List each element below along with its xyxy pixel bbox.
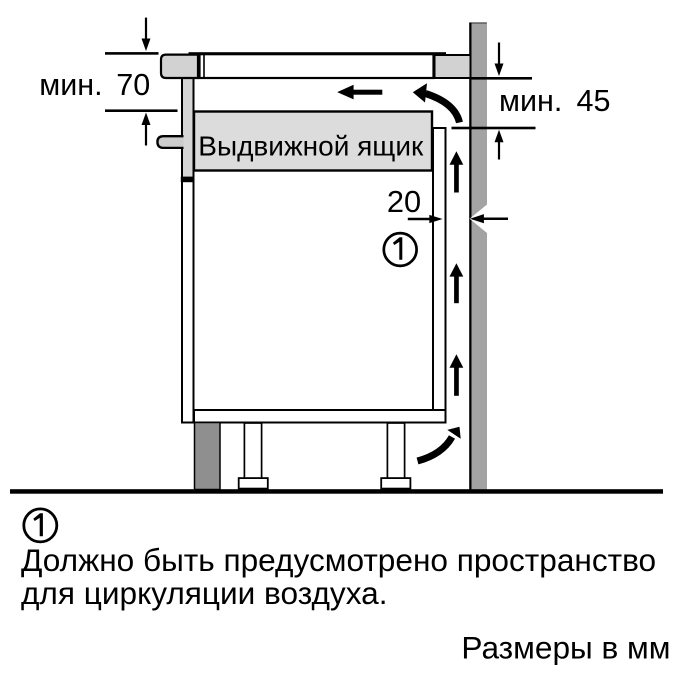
svg-text:Размеры в мм: Размеры в мм xyxy=(461,629,670,665)
svg-text:мин.: мин. xyxy=(499,84,562,118)
svg-text:для циркуляции воздуха.: для циркуляции воздуха. xyxy=(21,575,388,611)
svg-text:мин.: мин. xyxy=(39,68,102,102)
svg-text:Должно быть предусмотрено прос: Должно быть предусмотрено пространство xyxy=(21,542,656,578)
svg-text:20: 20 xyxy=(387,184,421,219)
svg-text:70: 70 xyxy=(116,68,150,102)
svg-text:Выдвижной ящик: Выдвижной ящик xyxy=(198,130,424,161)
svg-text:45: 45 xyxy=(577,84,611,118)
